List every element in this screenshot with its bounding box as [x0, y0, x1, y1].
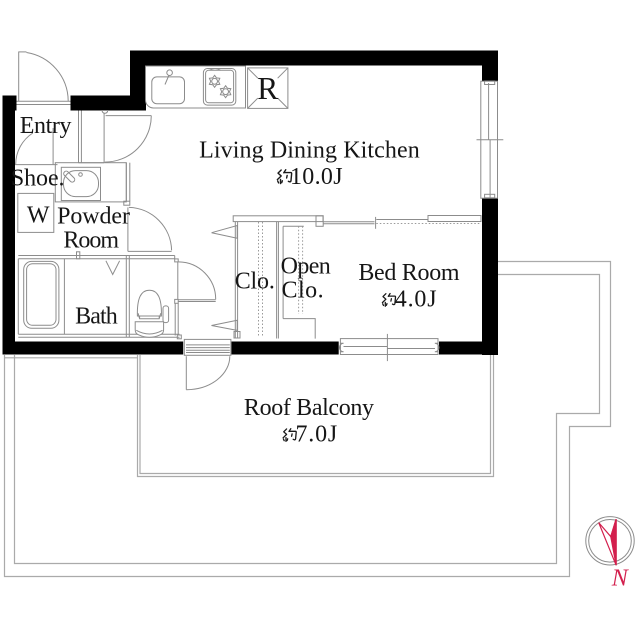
svg-text:7.0J: 7.0J [296, 421, 339, 447]
svg-text:R: R [257, 71, 278, 106]
svg-text:W: W [27, 203, 50, 229]
svg-text:N: N [611, 566, 630, 592]
svg-text:Bath: Bath [75, 304, 118, 330]
svg-text:4.0J: 4.0J [395, 286, 438, 312]
svg-text:Roof Balcony: Roof Balcony [244, 395, 374, 421]
svg-text:Shoe.: Shoe. [11, 166, 65, 192]
svg-text:Open: Open [281, 253, 331, 279]
svg-text:Clo.: Clo. [281, 278, 324, 304]
svg-text:Bed Room: Bed Room [358, 260, 460, 286]
svg-text:Room: Room [63, 227, 119, 253]
svg-text:10.0J: 10.0J [290, 164, 343, 190]
svg-text:Entry: Entry [20, 113, 72, 139]
svg-text:Powder: Powder [57, 203, 130, 229]
svg-text:Clo.: Clo. [235, 269, 275, 295]
svg-text:Living Dining Kitchen: Living Dining Kitchen [199, 138, 420, 164]
